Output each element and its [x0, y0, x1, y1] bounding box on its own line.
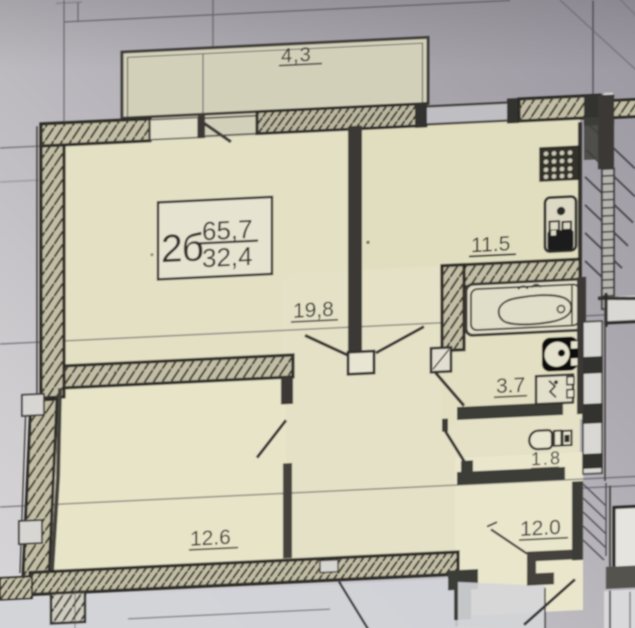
svg-text:12.6: 12.6	[190, 526, 231, 551]
svg-text:11.5: 11.5	[471, 232, 510, 257]
svg-text:12.0: 12.0	[520, 516, 561, 541]
svg-text:19,8: 19,8	[293, 298, 334, 323]
svg-text:1.8: 1.8	[531, 448, 562, 469]
svg-text:2б: 2б	[161, 226, 203, 271]
svg-text:32,4: 32,4	[202, 241, 253, 273]
svg-text:3.7: 3.7	[496, 374, 525, 398]
